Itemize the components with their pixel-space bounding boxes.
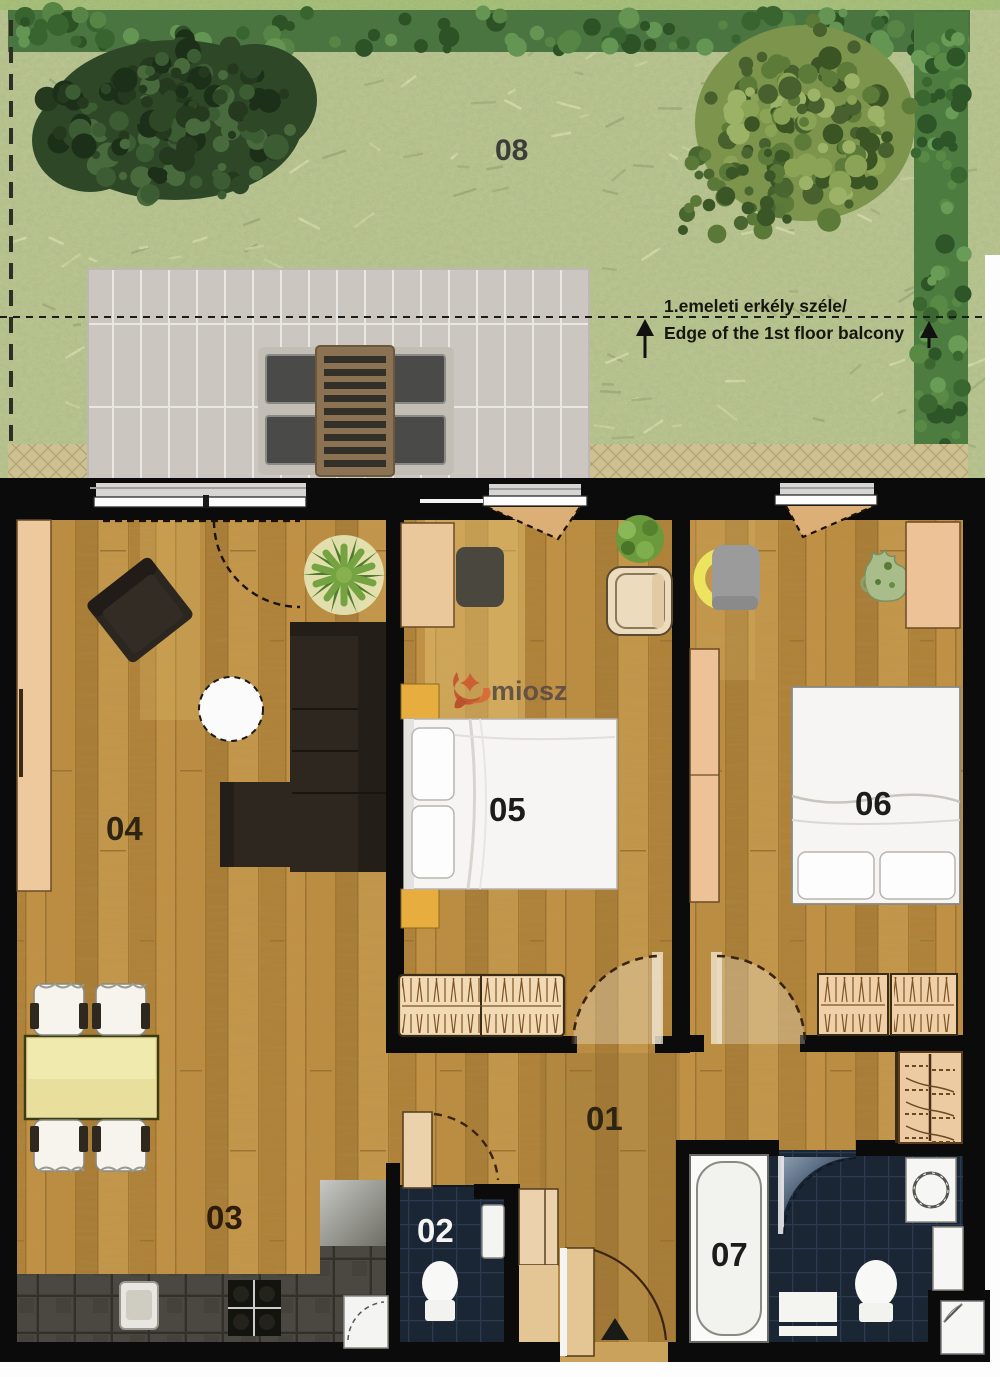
- svg-text:08: 08: [495, 134, 528, 167]
- svg-text:01: 01: [586, 1100, 623, 1137]
- svg-text:1.emeleti erkély széle/: 1.emeleti erkély széle/: [664, 296, 847, 316]
- svg-text:05: 05: [489, 791, 526, 828]
- svg-text:06: 06: [855, 785, 892, 822]
- svg-text:03: 03: [206, 1199, 243, 1236]
- svg-text:04: 04: [106, 810, 143, 847]
- svg-text:Edge of the 1st floor balcony: Edge of the 1st floor balcony: [664, 323, 904, 343]
- svg-text:02: 02: [417, 1212, 454, 1249]
- svg-text:miosz: miosz: [491, 676, 568, 706]
- svg-text:07: 07: [711, 1236, 748, 1273]
